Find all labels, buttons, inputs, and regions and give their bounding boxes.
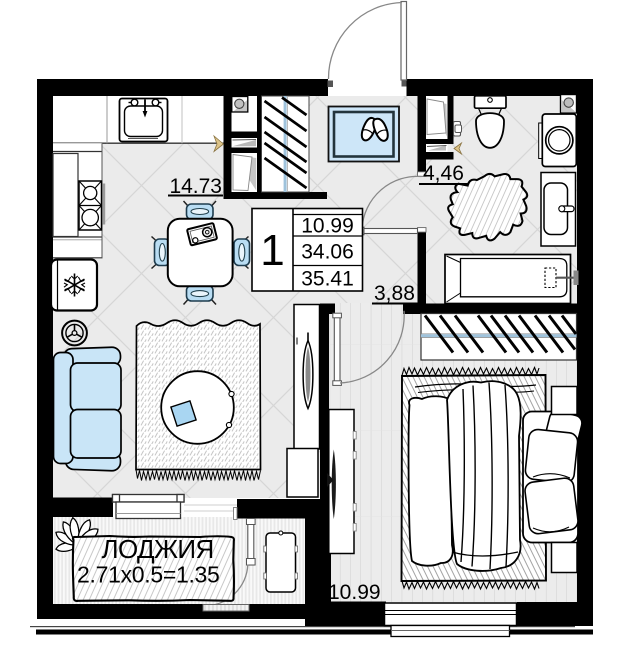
- svg-text:2.71x0.5=1.35: 2.71x0.5=1.35: [77, 562, 220, 588]
- svg-text:10.99: 10.99: [301, 215, 354, 238]
- svg-text:1: 1: [260, 226, 284, 275]
- svg-text:3,88: 3,88: [374, 282, 415, 305]
- svg-text:34.06: 34.06: [301, 241, 354, 264]
- svg-text:4,46: 4,46: [423, 162, 464, 185]
- svg-text:10.99: 10.99: [328, 581, 381, 604]
- svg-text:35.41: 35.41: [301, 268, 354, 291]
- svg-text:ЛОДЖИЯ: ЛОДЖИЯ: [102, 534, 214, 564]
